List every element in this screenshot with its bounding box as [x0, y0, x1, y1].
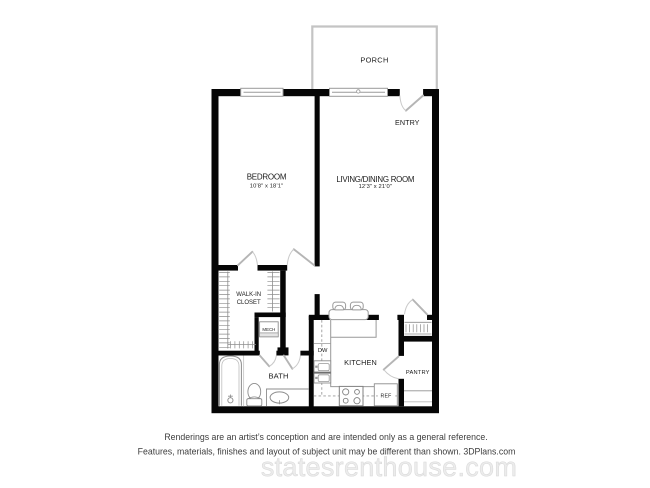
svg-text:10’8" x 18’1": 10’8" x 18’1" [250, 183, 283, 189]
svg-text:MECH: MECH [262, 327, 275, 332]
svg-text:KITCHEN: KITCHEN [344, 358, 377, 367]
svg-text:CLOSET: CLOSET [237, 300, 261, 306]
svg-text:Features, materials, finishes: Features, materials, finishes and layout… [138, 447, 516, 457]
svg-text:LIVING/DINING ROOM: LIVING/DINING ROOM [336, 175, 414, 184]
svg-text:12’3" x 21’0": 12’3" x 21’0" [359, 184, 392, 190]
svg-text:DW: DW [318, 348, 328, 354]
svg-text:BATH: BATH [268, 371, 288, 380]
svg-text:PORCH: PORCH [360, 55, 388, 64]
svg-text:ENTRY: ENTRY [395, 118, 420, 127]
svg-text:WALK-IN: WALK-IN [236, 292, 261, 298]
svg-text:BEDROOM: BEDROOM [247, 173, 287, 182]
svg-text:Renderings are an artist’s con: Renderings are an artist’s conception an… [164, 432, 487, 442]
svg-text:PANTRY: PANTRY [406, 370, 430, 376]
svg-text:REF: REF [381, 393, 392, 399]
